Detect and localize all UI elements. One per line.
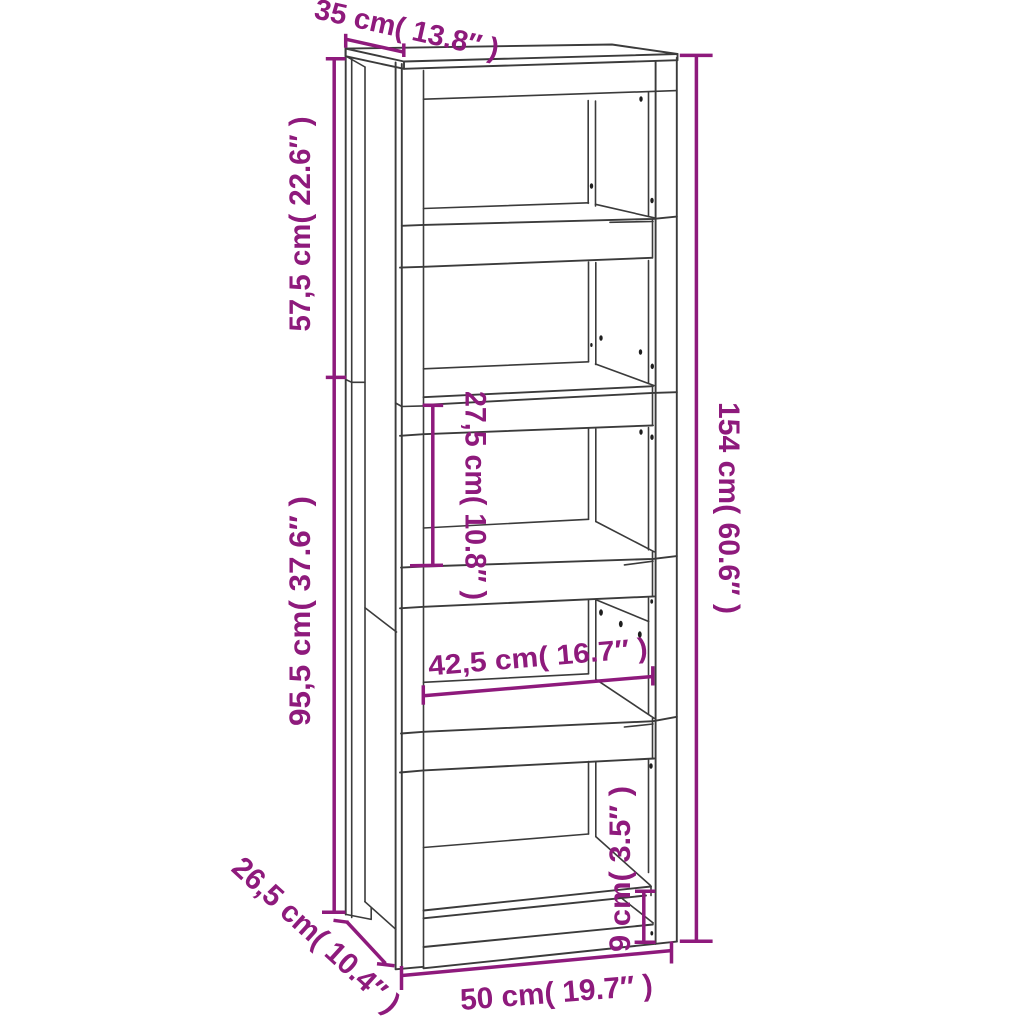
svg-text:35 cm( 13.8″ ): 35 cm( 13.8″ ) xyxy=(311,0,501,66)
svg-text:57,5 cm( 22.6″ ): 57,5 cm( 22.6″ ) xyxy=(284,117,317,332)
svg-text:27,5 cm( 10.8″ ): 27,5 cm( 10.8″ ) xyxy=(459,391,492,600)
svg-text:154 cm( 60.6″ ): 154 cm( 60.6″ ) xyxy=(712,402,745,614)
svg-text:9 cm( 3.5″ ): 9 cm( 3.5″ ) xyxy=(604,786,637,952)
svg-text:42,5 cm( 16.7″ ): 42,5 cm( 16.7″ ) xyxy=(427,632,649,681)
svg-text:50 cm( 19.7″ ): 50 cm( 19.7″ ) xyxy=(459,969,654,1017)
svg-text:26,5 cm( 10.4″ ): 26,5 cm( 10.4″ ) xyxy=(225,851,406,1020)
svg-text:95,5 cm( 37.6″ ): 95,5 cm( 37.6″ ) xyxy=(284,496,317,726)
